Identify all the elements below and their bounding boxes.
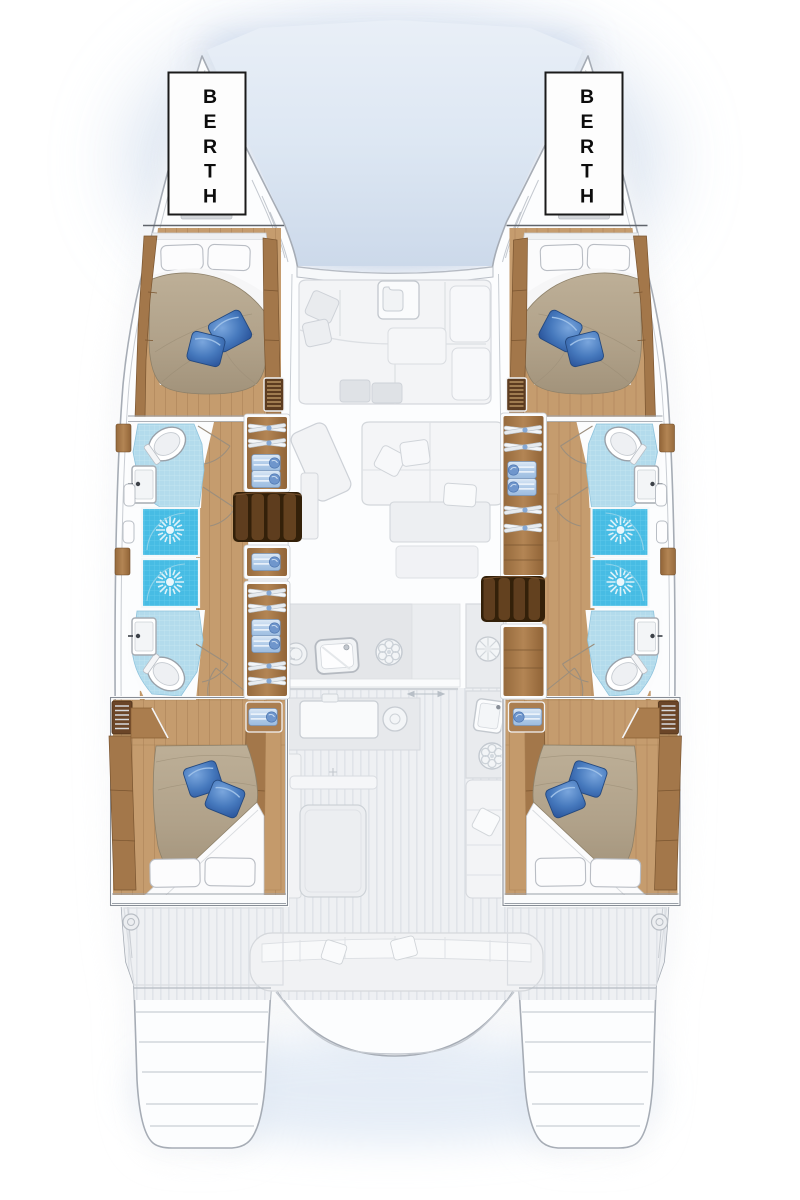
svg-text:B: B — [203, 86, 217, 108]
svg-text:H: H — [580, 186, 594, 208]
svg-text:R: R — [203, 136, 217, 158]
svg-text:E: E — [203, 111, 216, 133]
svg-text:R: R — [580, 136, 594, 158]
svg-text:E: E — [580, 111, 593, 133]
svg-text:T: T — [204, 161, 216, 183]
svg-text:T: T — [581, 161, 593, 183]
svg-text:H: H — [203, 186, 217, 208]
svg-text:B: B — [580, 86, 594, 108]
